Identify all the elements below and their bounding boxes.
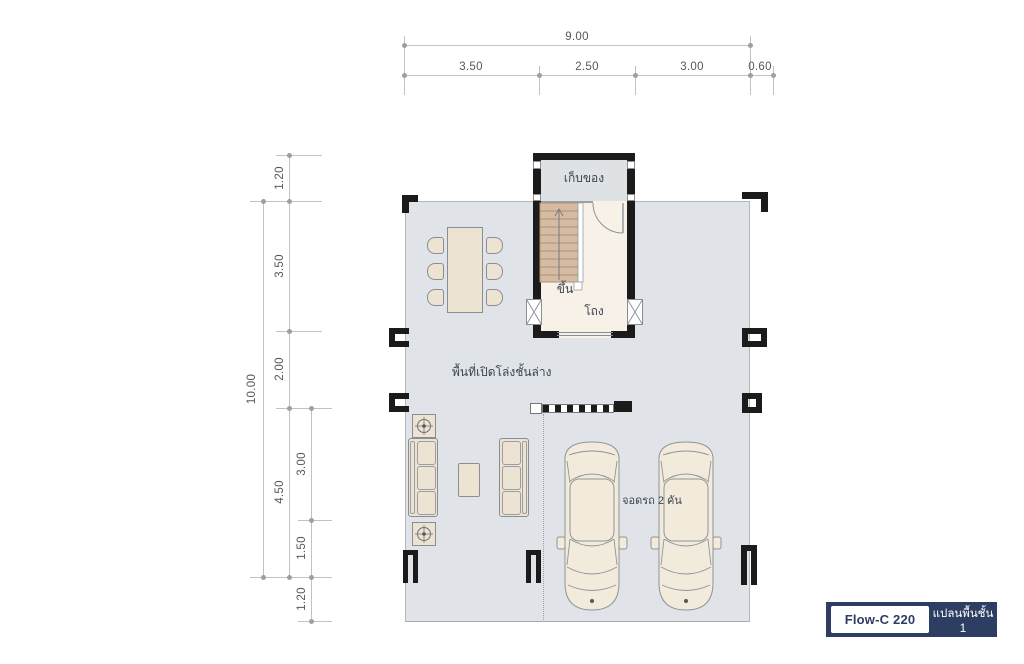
dim-tick — [402, 73, 407, 78]
model-name: Flow-C 220 — [831, 606, 929, 633]
sofa-cushion — [417, 441, 436, 465]
dim-tick — [287, 329, 292, 334]
car-roof — [570, 479, 614, 541]
railing — [542, 404, 614, 413]
dim-extension-line — [298, 520, 332, 521]
car-mirror — [713, 537, 721, 549]
column — [741, 545, 757, 585]
dim-tick — [261, 575, 266, 580]
dim-label-total-width: 9.00 — [557, 30, 597, 44]
dim-extension-line — [298, 621, 332, 622]
dim-label: 2.50 — [567, 60, 607, 74]
sofa-back — [410, 441, 415, 514]
dim-extension-line — [635, 66, 636, 95]
stairs — [538, 202, 584, 294]
car-1 — [556, 433, 628, 617]
dim-line — [289, 155, 290, 577]
car-roof — [664, 479, 708, 541]
dining-chair — [427, 263, 444, 280]
parking-label: จอดรถ 2 คัน — [610, 494, 694, 509]
dim-label: 3.50 — [273, 246, 287, 286]
column — [742, 192, 768, 212]
column — [403, 550, 418, 583]
hall-bottom-wall — [533, 331, 559, 338]
column — [389, 328, 409, 347]
model-badge: Flow-C 220 แปลนพื้นชั้น 1 — [826, 602, 997, 637]
dim-line — [311, 408, 312, 621]
dim-label: 1.20 — [295, 579, 309, 619]
dim-tick — [748, 43, 753, 48]
side-table — [412, 414, 436, 438]
dining-chair — [427, 289, 444, 306]
dim-tick — [633, 73, 638, 78]
car-mirror — [557, 537, 565, 549]
storage-top-wall — [533, 153, 635, 160]
dim-label: 0.60 — [742, 60, 778, 74]
sofa-back — [522, 441, 527, 514]
dim-tick — [309, 406, 314, 411]
sofa-cushion — [502, 441, 521, 465]
column — [742, 328, 767, 347]
dim-tick — [261, 199, 266, 204]
sofa-cushion — [502, 491, 521, 515]
side-table — [412, 522, 436, 546]
dim-tick — [309, 518, 314, 523]
dim-tick — [287, 199, 292, 204]
sofa-left — [408, 438, 438, 517]
stair-up-label: ขึ้น — [548, 282, 582, 297]
plan-title: แปลนพื้นชั้น 1 — [929, 605, 997, 635]
dim-label: 4.50 — [273, 472, 287, 512]
hall-label: โถง — [572, 304, 616, 319]
coffee-table — [458, 463, 480, 497]
sofa-right — [499, 438, 529, 517]
storage-room-label: เก็บของ — [548, 171, 620, 186]
hall-entry-opening — [557, 332, 613, 336]
sofa-cushion — [417, 491, 436, 515]
dim-tick — [287, 575, 292, 580]
dining-table — [447, 227, 483, 313]
car-2 — [650, 433, 722, 617]
dim-label: 3.00 — [672, 60, 712, 74]
dim-label: 1.50 — [295, 528, 309, 568]
car-mirror — [651, 537, 659, 549]
dim-extension-line — [276, 331, 322, 332]
dim-extension-line — [276, 408, 332, 409]
column — [526, 550, 541, 583]
dim-line — [404, 45, 750, 46]
window-icon — [627, 161, 635, 169]
open-area-label: พื้นที่เปิดโล่งชั้นล่าง — [452, 365, 582, 380]
railing-post — [530, 403, 542, 414]
dining-chair — [486, 263, 503, 280]
dim-label-total-height: 10.00 — [245, 369, 259, 409]
dim-label: 1.20 — [273, 158, 287, 198]
dim-tick — [287, 406, 292, 411]
dim-tick — [287, 153, 292, 158]
dim-tick — [537, 73, 542, 78]
window-icon — [526, 299, 542, 325]
window-icon — [533, 161, 541, 169]
dim-label: 3.50 — [451, 60, 491, 74]
parking-boundary-line — [543, 414, 544, 620]
dim-extension-line — [276, 155, 322, 156]
dim-label: 3.00 — [295, 444, 309, 484]
dim-label: 2.00 — [273, 349, 287, 389]
dining-chair — [486, 289, 503, 306]
railing-end-column — [614, 401, 632, 412]
dim-extension-line — [539, 66, 540, 95]
door-swing — [590, 200, 630, 240]
sofa-cushion — [417, 466, 436, 490]
dim-tick — [402, 43, 407, 48]
hall-bottom-wall — [611, 331, 635, 338]
dim-line — [404, 75, 773, 76]
sofa-cushion — [502, 466, 521, 490]
dim-tick — [309, 619, 314, 624]
column — [402, 195, 418, 213]
wall-joint — [533, 194, 541, 201]
dining-chair — [427, 237, 444, 254]
car-mirror — [619, 537, 627, 549]
column — [742, 393, 762, 413]
dim-line — [263, 201, 264, 577]
dim-tick — [309, 575, 314, 580]
window-icon — [627, 299, 643, 325]
column — [389, 393, 409, 412]
dining-chair — [486, 237, 503, 254]
